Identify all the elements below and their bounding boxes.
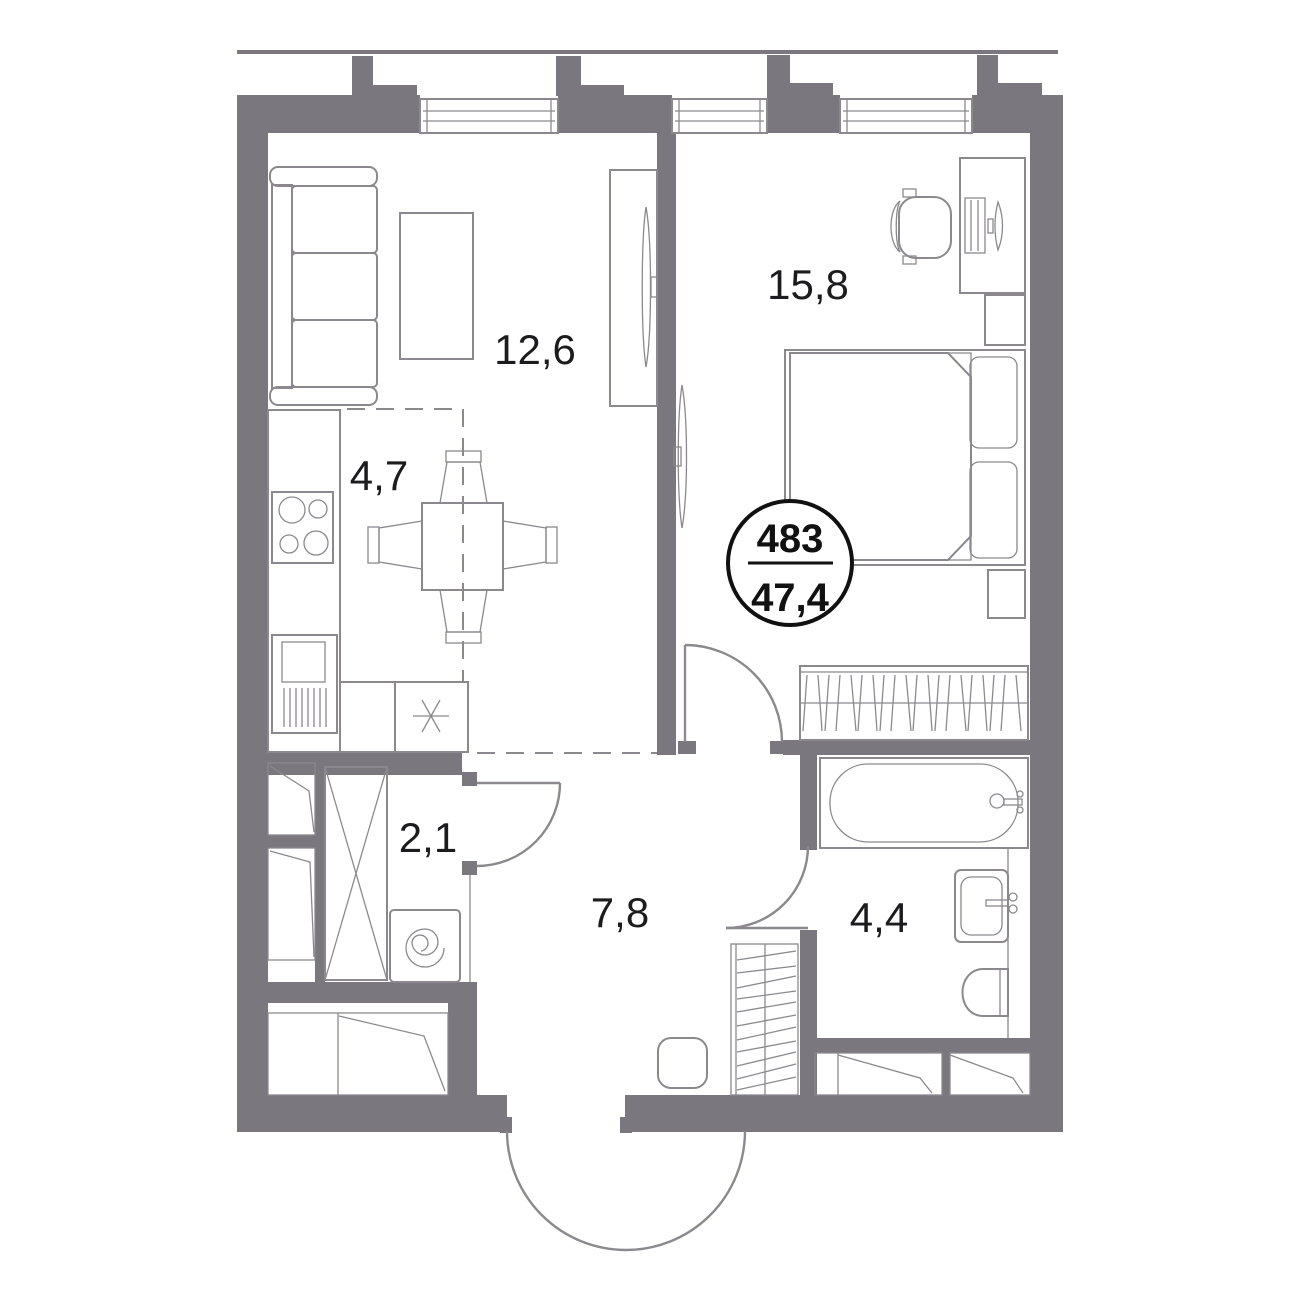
doors xyxy=(470,645,808,1250)
closet-top-wall xyxy=(258,753,462,775)
bottom-wall-left xyxy=(237,1095,507,1132)
bottom-wall-right xyxy=(625,1095,1063,1132)
bathtub-icon xyxy=(820,758,1028,848)
entry-pouf-icon xyxy=(658,1038,707,1088)
facade-line xyxy=(237,50,1058,54)
fridge-icon xyxy=(272,635,337,733)
pilaster-step xyxy=(790,83,833,96)
vent-shaft xyxy=(268,848,315,960)
office-chair-icon xyxy=(891,189,951,264)
closet-partition xyxy=(315,760,325,982)
area-badge: 483 47,4 xyxy=(728,501,852,625)
floor-plan-page: 483 47,4 12,6 4,7 15,8 2,1 7,8 4,4 xyxy=(0,0,1300,1300)
bathroom-bottom-wall xyxy=(817,1038,1030,1053)
pillow-icon xyxy=(970,357,1017,448)
sofa-icon xyxy=(270,167,377,405)
room-label-hallway: 7,8 xyxy=(591,889,649,936)
monitor-icon xyxy=(988,202,1003,250)
pilaster-step xyxy=(373,85,417,96)
top-wall-segment xyxy=(558,95,672,133)
kitchen-counter xyxy=(268,410,340,752)
pilaster xyxy=(352,56,373,96)
entrance-door-arc xyxy=(507,1131,745,1250)
door-jamb xyxy=(678,741,696,754)
closet-door xyxy=(470,783,560,982)
bedroom-furniture xyxy=(674,158,1028,740)
left-wall xyxy=(237,95,268,1132)
vent-shaft xyxy=(950,1053,1030,1095)
shaft-divider xyxy=(268,835,315,848)
dining-chair-icon xyxy=(368,521,422,569)
storage-pier xyxy=(448,1003,477,1095)
room-label-bedroom: 15,8 xyxy=(767,261,849,308)
kitchen-sink-counter xyxy=(340,682,468,752)
window-living xyxy=(420,99,558,133)
window-bedroom-2 xyxy=(840,99,972,133)
pilaster-step xyxy=(998,83,1042,96)
bedroom-door xyxy=(685,645,782,742)
tv-living-icon xyxy=(610,170,657,406)
room-label-living: 12,6 xyxy=(494,326,576,373)
hallway-furniture xyxy=(268,944,798,1095)
kitchen-furniture xyxy=(268,410,557,752)
shoe-rack-icon xyxy=(731,944,798,1095)
closet-furniture xyxy=(268,763,460,982)
washing-machine-icon xyxy=(390,910,460,982)
coffee-table-icon xyxy=(400,213,473,359)
closet-bottom-wall xyxy=(258,982,477,1003)
right-wall xyxy=(1030,133,1063,1132)
room-label-kitchen: 4,7 xyxy=(350,452,408,499)
living-room-furniture xyxy=(270,167,657,406)
window-bedroom-1 xyxy=(672,99,767,133)
dining-chair-icon xyxy=(503,521,557,569)
nightstand-icon xyxy=(985,295,1025,345)
top-wall-segment xyxy=(972,95,1063,133)
toilet-icon xyxy=(963,969,1009,1016)
pilaster xyxy=(977,55,998,96)
nightstand-icon xyxy=(988,570,1025,618)
closet-wardrobe-icon xyxy=(325,767,387,980)
storage-cabinet-icon xyxy=(268,1013,448,1095)
room-label-bathroom: 4,4 xyxy=(850,894,908,941)
floor-plan-svg: 483 47,4 12,6 4,7 15,8 2,1 7,8 4,4 xyxy=(0,0,1300,1300)
walls xyxy=(237,50,1063,1133)
door-jamb xyxy=(462,772,477,786)
shaft-divider xyxy=(942,1048,950,1095)
room-label-wardrobe: 2,1 xyxy=(399,814,457,861)
living-bedroom-wall xyxy=(657,133,676,755)
door-jamb xyxy=(770,741,783,754)
pilaster-step xyxy=(581,85,624,96)
door-jamb xyxy=(500,1117,512,1133)
bedroom-hall-wall xyxy=(783,740,1030,755)
pilaster xyxy=(767,55,790,96)
windows xyxy=(420,99,972,133)
sink-asterisk-icon xyxy=(413,700,449,732)
washbasin-icon xyxy=(955,870,1017,942)
pilaster xyxy=(556,56,581,96)
dining-table-icon xyxy=(422,503,503,590)
bathroom-door xyxy=(726,846,808,928)
badge-area: 47,4 xyxy=(751,576,830,620)
top-wall-segment xyxy=(767,95,840,133)
keyboard-icon xyxy=(965,198,985,253)
stove-icon xyxy=(272,492,333,563)
bathroom-wall-upper xyxy=(800,755,817,850)
pillow-icon xyxy=(970,462,1017,558)
door-jamb xyxy=(462,861,477,875)
vent-shaft xyxy=(815,1053,942,1095)
door-jamb xyxy=(620,1117,632,1133)
bedroom-wardrobe-icon xyxy=(800,666,1028,740)
badge-number: 483 xyxy=(757,517,824,561)
